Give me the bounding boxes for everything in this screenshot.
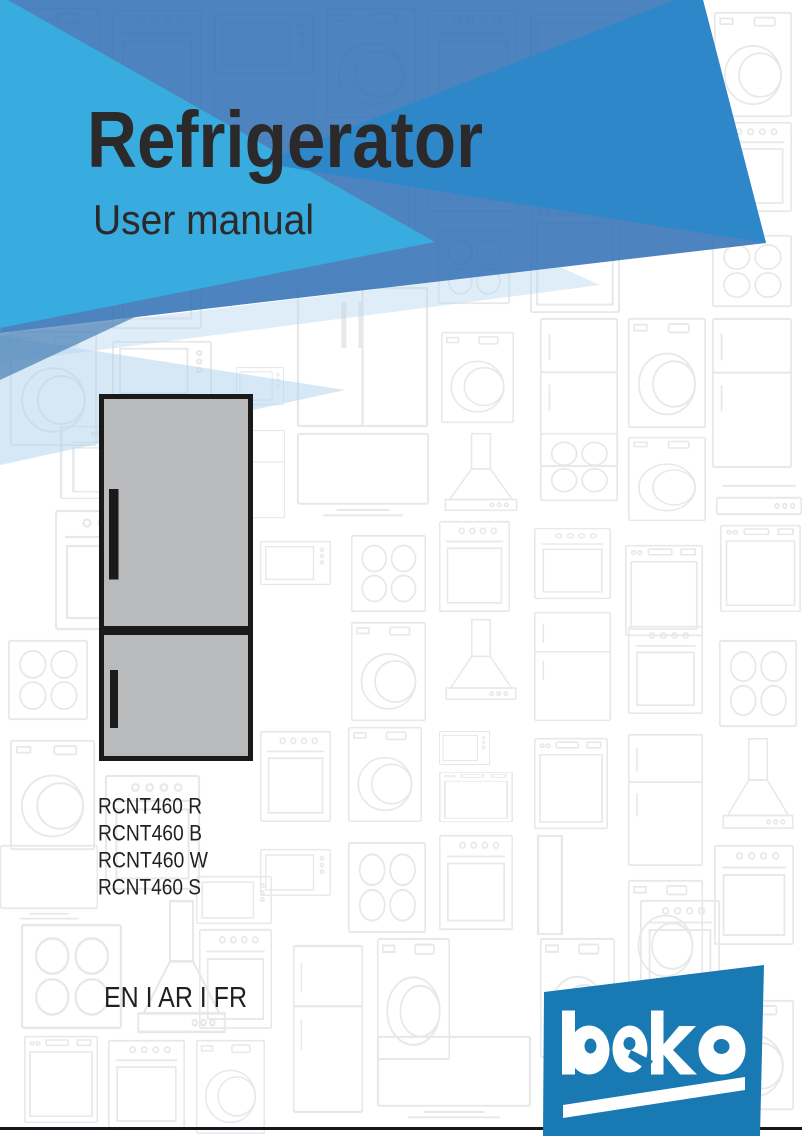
svg-text:RCNT460 B: RCNT460 B <box>98 821 202 846</box>
svg-text:RCNT460 R: RCNT460 R <box>98 794 202 819</box>
svg-text:RCNT460 S: RCNT460 S <box>98 875 201 900</box>
svg-text:EN I AR I FR: EN I AR I FR <box>104 982 247 1014</box>
svg-text:Refrigerator: Refrigerator <box>87 95 483 184</box>
svg-text:RCNT460 W: RCNT460 W <box>98 848 209 873</box>
svg-text:User manual: User manual <box>93 196 314 243</box>
